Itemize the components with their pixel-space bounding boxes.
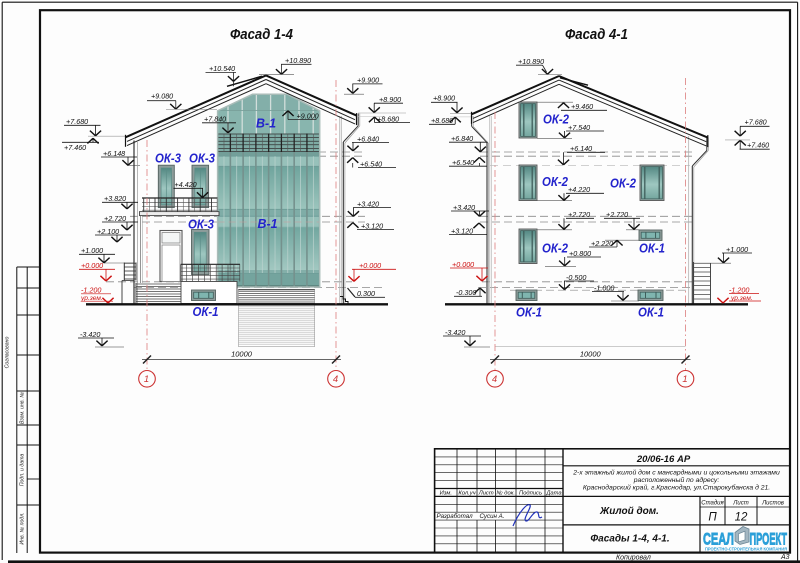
svg-text:П: П (708, 512, 717, 524)
svg-text:ОК-2: ОК-2 (610, 176, 636, 190)
svg-text:+7.540: +7.540 (568, 123, 590, 132)
svg-text:+4.420: +4.420 (175, 180, 197, 189)
svg-text:+6.148: +6.148 (103, 149, 125, 158)
svg-text:+7.680: +7.680 (66, 117, 88, 126)
svg-text:+3.120: +3.120 (361, 221, 383, 230)
svg-text:№ док.: № док. (496, 491, 515, 497)
svg-text:ОК-2: ОК-2 (543, 113, 569, 127)
svg-text:В-1: В-1 (256, 115, 276, 130)
svg-text:+3.420: +3.420 (357, 199, 379, 208)
svg-text:1: 1 (144, 374, 149, 385)
svg-text:-1.200: -1.200 (729, 285, 749, 294)
svg-text:+7.460: +7.460 (64, 143, 86, 152)
svg-text:Фасад 4-1: Фасад 4-1 (565, 27, 628, 43)
svg-text:-3.420: -3.420 (80, 330, 100, 339)
svg-text:ПРОЕКТНО-СТРОИТЕЛЬНАЯ КОМПАНИЯ: ПРОЕКТНО-СТРОИТЕЛЬНАЯ КОМПАНИЯ (705, 547, 787, 552)
svg-text:-1.200: -1.200 (81, 286, 101, 295)
svg-text:+2.720: +2.720 (104, 214, 126, 223)
svg-text:Подп. и дата: Подп. и дата (20, 454, 26, 487)
svg-text:+3.120: +3.120 (451, 226, 473, 235)
svg-text:+2.720: +2.720 (606, 210, 628, 219)
svg-text:ОК-1: ОК-1 (638, 306, 664, 320)
svg-text:+3.820: +3.820 (104, 194, 126, 203)
svg-text:4: 4 (333, 374, 338, 385)
svg-text:-0.500: -0.500 (566, 273, 586, 282)
svg-text:1: 1 (682, 374, 687, 385)
svg-text:ОК-3: ОК-3 (189, 152, 215, 166)
svg-text:+10.890: +10.890 (518, 57, 544, 66)
svg-text:10000: 10000 (231, 350, 253, 359)
svg-text:+6.540: +6.540 (360, 159, 382, 168)
svg-text:ОК-2: ОК-2 (542, 241, 568, 255)
svg-text:Краснодарский край, г.Краснода: Краснодарский край, г.Краснодар, ул.Стар… (583, 484, 770, 492)
svg-text:Фасады 1-4, 4-1.: Фасады 1-4, 4-1. (590, 534, 669, 545)
svg-text:В-1: В-1 (258, 216, 278, 231)
svg-text:Листов: Листов (761, 501, 784, 507)
svg-text:2-х этажный жилой дом с мансар: 2-х этажный жилой дом с мансардными и цо… (572, 469, 780, 477)
svg-text:0.300: 0.300 (357, 289, 375, 298)
svg-text:Фасад 1-4: Фасад 1-4 (230, 27, 293, 43)
svg-text:+7.680: +7.680 (745, 117, 767, 126)
svg-text:+6.140: +6.140 (570, 144, 592, 153)
svg-text:Стадия: Стадия (701, 501, 724, 507)
svg-text:+1.000: +1.000 (81, 246, 103, 255)
svg-text:Дата: Дата (545, 491, 562, 497)
svg-text:Подпись: Подпись (519, 491, 542, 497)
svg-text:ОК-3: ОК-3 (155, 152, 181, 166)
svg-text:+8.680: +8.680 (377, 114, 399, 123)
svg-text:20/06-16 АР: 20/06-16 АР (636, 454, 691, 465)
svg-text:+7.840: +7.840 (204, 115, 226, 124)
svg-text:+2.220: +2.220 (591, 239, 613, 248)
svg-text:Кол.уч: Кол.уч (458, 491, 475, 497)
svg-text:-1.000: -1.000 (594, 283, 614, 292)
svg-text:-0.300: -0.300 (456, 288, 476, 297)
svg-text:Копировал: Копировал (616, 555, 651, 562)
svg-text:Взам. инв. №: Взам. инв. № (20, 392, 26, 424)
svg-text:расположенный по адресу:: расположенный по адресу: (633, 476, 720, 484)
svg-text:Сусин А.: Сусин А. (480, 513, 505, 520)
svg-text:+6.540: +6.540 (452, 158, 474, 167)
svg-text:10000: 10000 (580, 350, 602, 359)
svg-text:+0.000: +0.000 (359, 261, 381, 270)
svg-text:+2.720: +2.720 (568, 210, 590, 219)
svg-text:+2.100: +2.100 (97, 227, 119, 236)
svg-text:Инв. № подл.: Инв. № подл. (20, 512, 26, 544)
svg-text:Разработал: Разработал (437, 513, 474, 520)
svg-text:+6.840: +6.840 (451, 134, 473, 143)
svg-text:Жилой дом.: Жилой дом. (599, 506, 659, 517)
svg-text:Лист: Лист (732, 501, 748, 507)
svg-text:ОК-1: ОК-1 (639, 241, 665, 255)
svg-text:+0.800: +0.800 (569, 249, 591, 258)
svg-text:+1.000: +1.000 (726, 245, 748, 254)
svg-text:+9.080: +9.080 (151, 91, 173, 100)
svg-text:+8.680: +8.680 (431, 116, 453, 125)
svg-text:+4.220: +4.220 (568, 185, 590, 194)
svg-text:+9.460: +9.460 (571, 102, 593, 111)
svg-text:ОК-1: ОК-1 (516, 306, 542, 320)
svg-text:+3.420: +3.420 (453, 203, 475, 212)
svg-text:+0.000: +0.000 (452, 260, 474, 269)
svg-text:ОК-1: ОК-1 (193, 305, 219, 319)
svg-text:ОК-2: ОК-2 (542, 175, 568, 189)
svg-text:+8.900: +8.900 (379, 95, 401, 104)
svg-text:+9.900: +9.900 (357, 76, 379, 85)
svg-text:ОК-3: ОК-3 (188, 217, 214, 231)
svg-text:+7.460: +7.460 (747, 141, 769, 150)
svg-text:А3: А3 (780, 554, 790, 561)
svg-text:+10.540: +10.540 (209, 64, 235, 73)
svg-text:-3.420: -3.420 (445, 328, 465, 337)
svg-text:+10.890: +10.890 (285, 56, 311, 65)
svg-text:+9.000: +9.000 (297, 111, 319, 120)
svg-text:Лист: Лист (478, 491, 494, 497)
svg-text:+8.900: +8.900 (433, 94, 455, 103)
svg-text:+0.000: +0.000 (81, 261, 103, 270)
svg-text:12: 12 (735, 512, 748, 524)
svg-text:+6.840: +6.840 (357, 134, 379, 143)
svg-text:Изм.: Изм. (440, 491, 452, 497)
svg-text:Согласовано: Согласовано (5, 337, 11, 369)
svg-text:4: 4 (492, 374, 497, 385)
